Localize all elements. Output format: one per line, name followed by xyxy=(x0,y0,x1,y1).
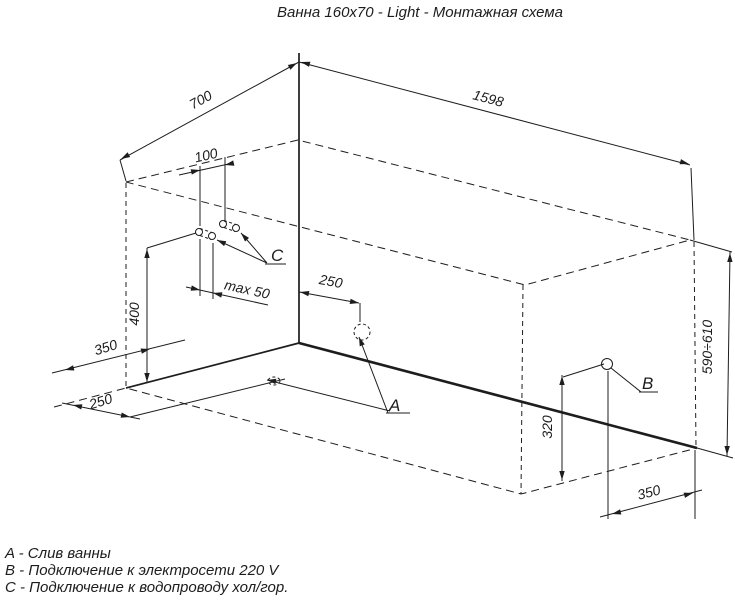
dim-max-50: max 50 xyxy=(186,239,271,305)
water-pipe-circle-icon xyxy=(220,221,227,228)
arrowhead xyxy=(120,152,130,161)
arrowhead xyxy=(121,412,131,419)
montage-drawing: Ванна 160x70 - Light - Монтажная схема 7… xyxy=(0,0,735,600)
arrowhead xyxy=(356,336,364,346)
montage-scheme-page: Ванна 160x70 - Light - Монтажная схема 7… xyxy=(0,0,735,600)
dim-label-320: 320 xyxy=(539,415,555,439)
dim-label-700: 700 xyxy=(186,87,214,112)
arrowhead xyxy=(559,376,564,385)
water-pipe-circle-icon xyxy=(233,225,240,232)
legend-item-a: A - Слив ванны xyxy=(4,545,111,562)
point-a-drain: A xyxy=(267,324,410,415)
dim-label-100: 100 xyxy=(193,145,219,166)
dim-label-590-610: 590÷610 xyxy=(699,320,715,375)
dim-590-610: 590÷610 xyxy=(690,240,733,456)
arrowhead xyxy=(141,346,151,353)
bathtub-outline xyxy=(54,140,697,494)
arrowhead xyxy=(216,238,226,247)
dim-100: 100 xyxy=(179,145,234,226)
drawing-title: Ванна 160x70 - Light - Монтажная схема xyxy=(277,4,563,21)
point-label-b: B xyxy=(642,374,653,393)
point-label-c: C xyxy=(271,246,284,265)
arrowhead xyxy=(559,471,564,480)
dim-350-floor: 350 xyxy=(52,336,185,373)
arrowhead xyxy=(684,490,694,497)
pipe-connector-dashes xyxy=(200,221,236,240)
arrowhead xyxy=(680,159,690,167)
dim-250-floor: 250 xyxy=(62,379,285,420)
dim-label-350-br: 350 xyxy=(635,481,662,502)
dim-label-max50: max 50 xyxy=(223,276,271,302)
dim-label-1598: 1598 xyxy=(471,86,505,110)
point-c-water-connections: C xyxy=(196,221,287,266)
tub-bottom-edges xyxy=(54,388,697,494)
dim-label-400: 400 xyxy=(126,302,142,326)
legend: A - Слив ванны B - Подключение к электро… xyxy=(4,545,288,596)
right-wall-floor-line xyxy=(299,343,697,448)
arrowhead xyxy=(64,365,74,372)
room-structure xyxy=(126,53,733,458)
drain-circle-icon xyxy=(354,324,370,340)
dim-700: 700 xyxy=(120,61,299,181)
arrowhead xyxy=(350,299,360,306)
dim-400: 400 xyxy=(126,233,196,383)
legend-item-b: B - Подключение к электросети 220 V xyxy=(5,562,280,579)
arrowhead xyxy=(611,509,621,516)
arrowhead xyxy=(724,446,730,455)
arrowhead xyxy=(144,249,149,258)
arrowhead xyxy=(144,373,149,382)
point-label-a: A xyxy=(388,396,400,415)
dim-label-250-wall: 250 xyxy=(317,271,344,291)
arrowhead xyxy=(224,160,234,167)
dim-320: 320 xyxy=(539,364,604,481)
water-pipe-circle-icon xyxy=(209,233,216,240)
arrowhead xyxy=(212,290,222,297)
legend-item-c: C - Подключение к водопроводу хол/гор. xyxy=(5,579,288,596)
water-pipe-circle-icon xyxy=(196,229,203,236)
dim-label-350-floor: 350 xyxy=(92,336,119,358)
point-b-power: B xyxy=(602,359,659,394)
arrowhead xyxy=(191,285,201,292)
dim-250-wall: 250 xyxy=(299,271,360,322)
dim-label-250-floor: 250 xyxy=(86,390,114,412)
arrowhead xyxy=(288,61,298,70)
dim-1598: 1598 xyxy=(299,59,694,240)
arrowhead xyxy=(727,253,733,262)
tub-vertical-edges xyxy=(126,183,696,494)
